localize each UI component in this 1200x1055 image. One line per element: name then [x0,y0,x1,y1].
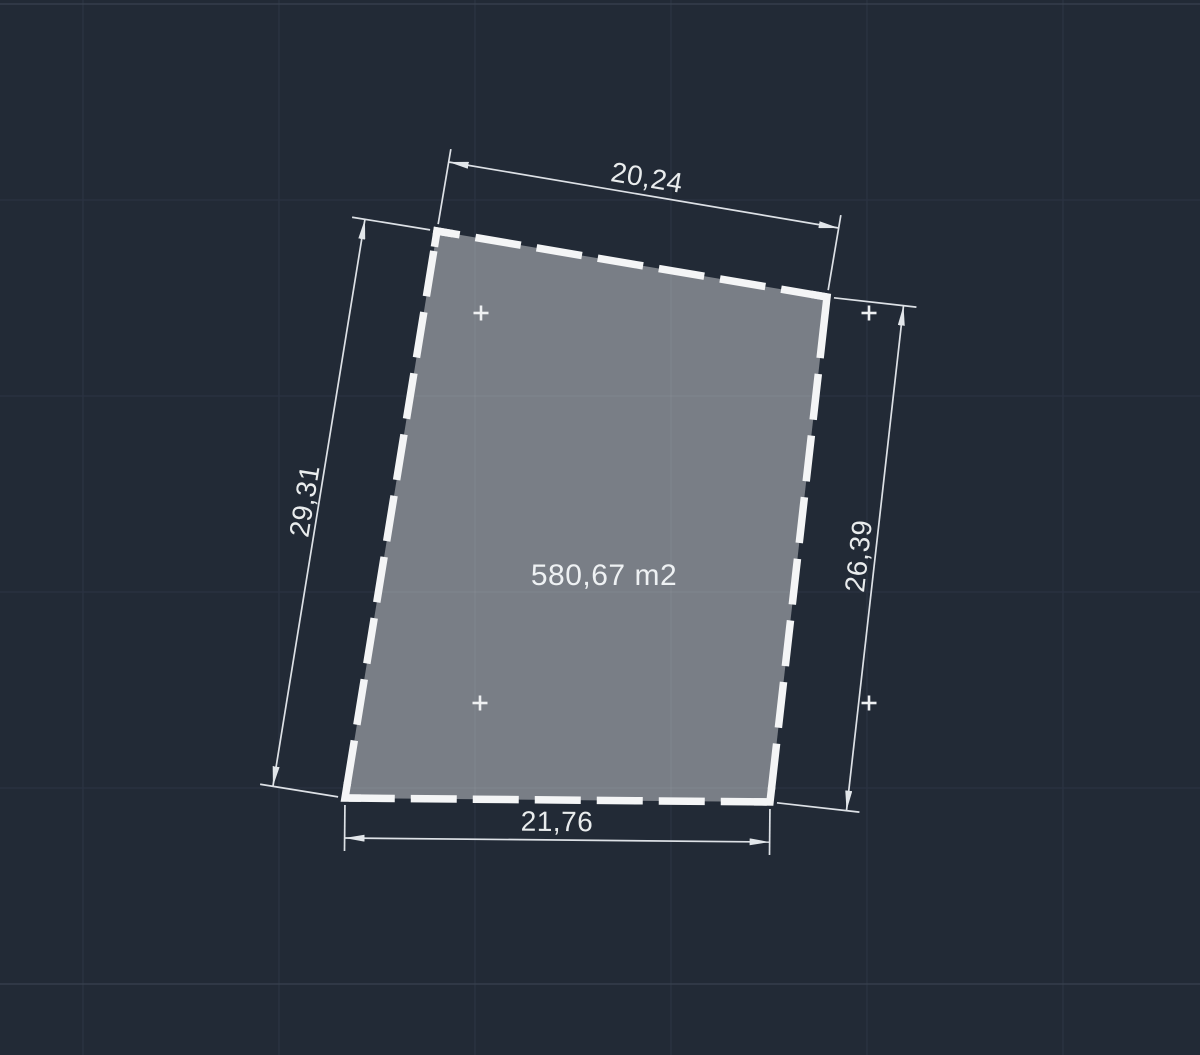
dimension-label-bottom[interactable]: 21,76 [521,806,594,839]
extension-line-left[interactable] [260,784,338,797]
extension-line-right[interactable] [834,298,916,307]
parcel-polygon[interactable] [345,231,827,802]
dimension-line-bottom[interactable] [345,838,770,842]
parcel-fill[interactable] [345,231,827,802]
extension-line-top[interactable] [438,149,451,224]
cad-viewport[interactable]: 20,24 29,31 26,39 21,76 580,67 m2 [0,0,1200,1055]
parcel-area-label[interactable]: 580,67 m2 [531,559,677,593]
drawing-canvas[interactable] [0,0,1200,1055]
